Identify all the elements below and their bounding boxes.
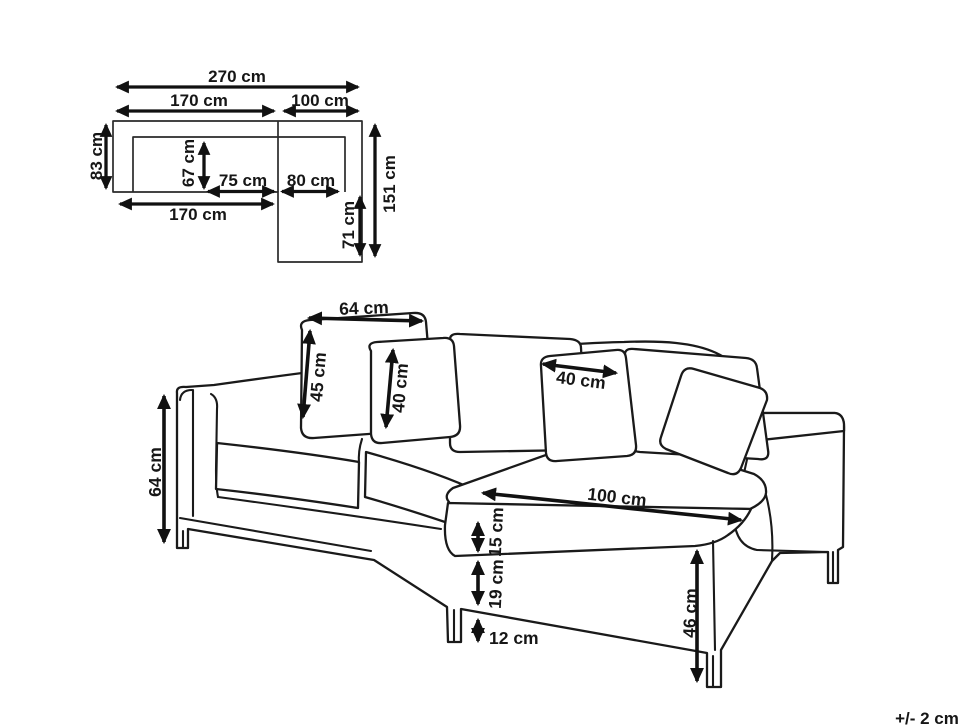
label-right-section-width: 100 cm [291,91,349,110]
sofa-perspective-drawing: 64 cm 45 cm 40 cm 40 cm 64 cm 100 cm 15 … [145,297,844,687]
label-seat-height: 46 cm [679,588,701,638]
scatter-cushion-left [369,338,460,443]
label-back-cushion-width: 64 cm [339,297,389,319]
label-chaise-extension: 71 cm [339,201,358,249]
label-overall-height: 64 cm [145,447,165,497]
label-inner-left-width: 75 cm [219,171,267,190]
label-leg-height: 12 cm [489,628,539,648]
label-bottom-width: 170 cm [169,205,227,224]
diagram-canvas: 270 cm 170 cm 100 cm 83 cm 67 cm 75 cm 8… [0,0,970,728]
label-inner-depth: 67 cm [179,139,198,187]
label-seat-cushion-thickness: 15 cm [485,507,508,558]
label-inner-right-width: 80 cm [287,171,335,190]
label-left-depth: 83 cm [87,132,106,180]
label-left-section-width: 170 cm [170,91,228,110]
label-base-height: 19 cm [485,559,508,610]
tolerance-note: +/- 2 cm [895,709,959,728]
sofa-dimensions-diagram: 270 cm 170 cm 100 cm 83 cm 67 cm 75 cm 8… [0,0,970,728]
label-overall-width: 270 cm [208,67,266,86]
label-overall-depth: 151 cm [380,155,399,213]
top-view-plan: 270 cm 170 cm 100 cm 83 cm 67 cm 75 cm 8… [87,67,399,262]
